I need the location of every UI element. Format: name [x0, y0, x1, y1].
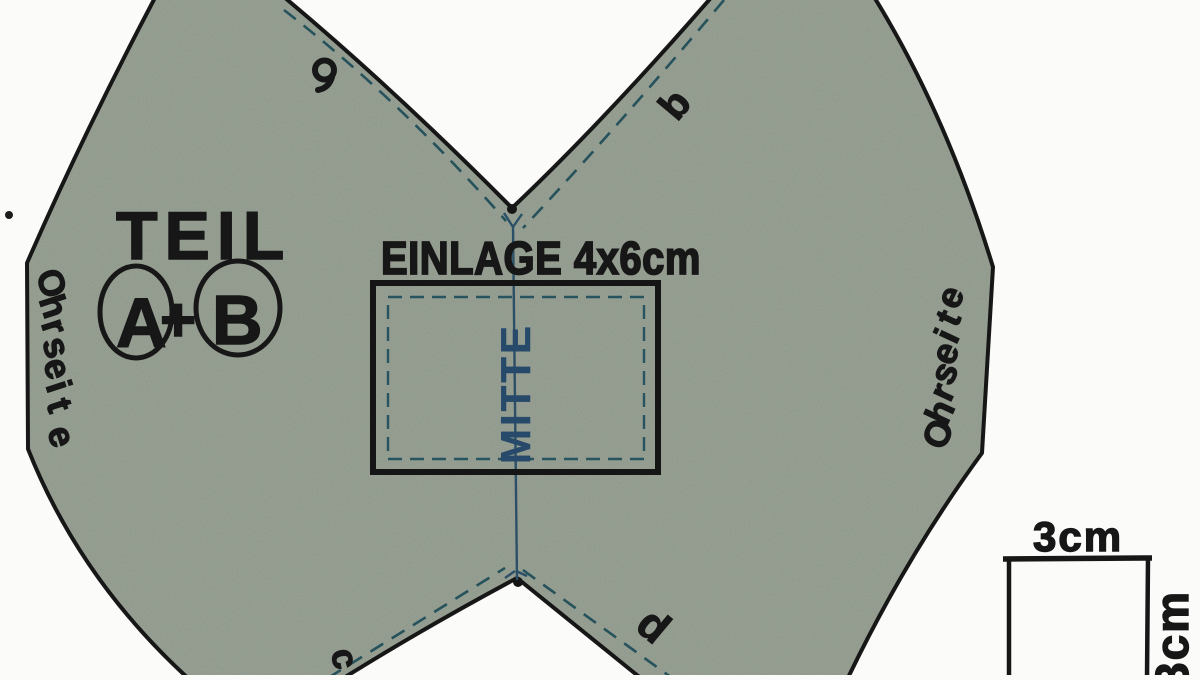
svg-text:MITTE: MITTE: [492, 323, 539, 464]
svg-text:EINLAGE 4x6cm: EINLAGE 4x6cm: [381, 233, 701, 284]
svg-text:+: +: [160, 286, 196, 355]
svg-text:A: A: [116, 284, 167, 362]
svg-text:TEIL: TEIL: [116, 198, 291, 274]
svg-text:3cm: 3cm: [1033, 513, 1123, 560]
svg-text:B: B: [212, 281, 263, 359]
svg-text:3cm: 3cm: [1146, 590, 1198, 675]
